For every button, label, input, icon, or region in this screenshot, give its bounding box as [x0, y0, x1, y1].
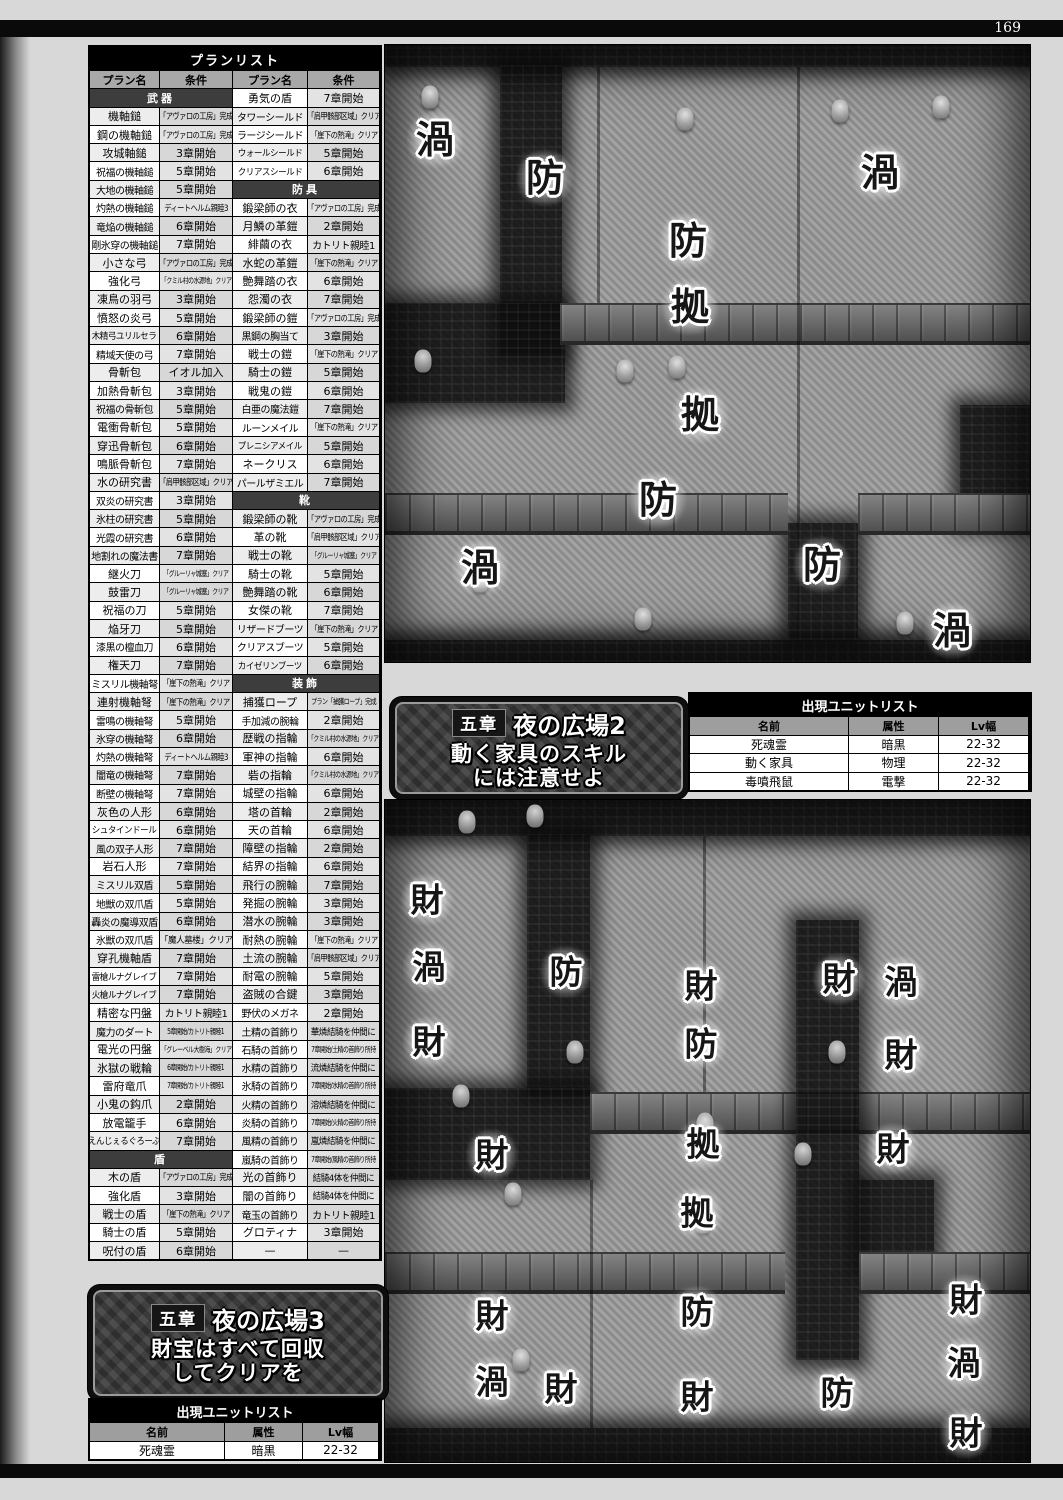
plan-condition-cell: 「崖下の熱滝」クリア — [160, 675, 232, 692]
plan-condition-cell: カトリト親睦1 — [160, 1004, 232, 1021]
unit-cell: 暗黒 — [849, 736, 938, 754]
map-label-treasure: 財 — [685, 970, 718, 1003]
plan-name-cell: 水蛇の革鎧 — [233, 254, 307, 271]
plan-condition-cell: 2章開始 — [160, 1096, 232, 1113]
plan-name-cell: 戦士の靴 — [233, 547, 307, 564]
plan-condition-cell: 6章開始 — [160, 913, 232, 930]
plan-name-cell: 竜玉の首飾り — [233, 1205, 307, 1222]
plan-condition-cell: 7章開始 — [160, 455, 232, 472]
plan-name-cell: 潜水の腕輪 — [233, 913, 307, 930]
plan-condition-cell: 5章開始 — [308, 144, 379, 161]
plan-name-cell: 断壁の機軸弩 — [90, 785, 159, 802]
unit-list-table-left: 出現ユニットリスト 名前属性Lv幅死魂霊暗黒22-32 — [88, 1398, 382, 1461]
plan-name-cell: クリアスシールド — [233, 162, 307, 179]
ghost-sprite — [527, 805, 544, 828]
stage-hint-line: 財宝はすべて回収 — [151, 1337, 325, 1361]
stage-title: 夜の広場2 — [513, 706, 626, 741]
plan-name-cell: 氷獣の双爪盾 — [90, 931, 159, 948]
plan-condition-cell: 結騎4体を仲間に — [308, 1187, 379, 1204]
map-label-defense: 防 — [681, 1296, 714, 1329]
plan-name-cell: 鋼の機軸鎚 — [90, 126, 159, 143]
plan-name-cell: 盗賊の合鍵 — [233, 986, 307, 1003]
chapter-chip: 五章 — [452, 709, 506, 737]
plan-section-cell: 靴 — [233, 492, 379, 509]
plan-name-cell: 氷獄の戦輪 — [90, 1059, 159, 1076]
plan-name-cell: 精密な円盤 — [90, 1004, 159, 1021]
plan-condition-cell: 6章開始 — [308, 455, 379, 472]
plan-name-cell: 騎士の盾 — [90, 1224, 159, 1241]
plan-condition-cell: 「クミル村の水源地」クリア — [308, 766, 379, 783]
plan-section-cell: 装飾 — [233, 675, 379, 692]
plan-condition-cell: 「グルーリャ城塞」クリア — [308, 547, 379, 564]
plan-name-cell: 野伏のメガネ — [233, 1004, 307, 1021]
plan-condition-cell: 嵐燐結騎を仲間に — [308, 1132, 379, 1149]
plan-name-cell: 戦鬼の鎧 — [233, 382, 307, 399]
plan-condition-cell: 「アヴァロの工房」完成 — [160, 1169, 232, 1186]
unit-cell: 22-32 — [939, 773, 1028, 791]
plan-condition-cell: 7章開始/火精の首飾り所持 — [308, 1114, 379, 1131]
plan-condition-cell: 3章開始 — [308, 986, 379, 1003]
plan-condition-cell: 7章開始 — [160, 949, 232, 966]
plan-condition-cell: 6章開始 — [308, 382, 379, 399]
unit-column-header: 名前 — [690, 717, 848, 735]
plan-name-cell: プレニシアメイル — [233, 437, 307, 454]
map-label-treasure: 財 — [950, 1284, 983, 1317]
plan-condition-cell: 6章開始 — [160, 437, 232, 454]
plan-condition-cell: 5章開始/カトリト親睦1 — [160, 1022, 232, 1039]
plan-condition-cell: プラン「捕獲ロープ」完成 — [308, 693, 379, 710]
plan-condition-cell: 5章開始 — [160, 711, 232, 728]
plan-name-cell: 騎士の靴 — [233, 565, 307, 582]
plan-condition-cell: 3章開始 — [308, 913, 379, 930]
statue-sprite — [832, 100, 849, 123]
plan-condition-cell: 6章開始 — [160, 1242, 232, 1259]
plan-name-cell: 祝福の骨斬包 — [90, 400, 159, 417]
plan-condition-cell: 「肩甲骸部区域」クリア — [160, 474, 232, 491]
plan-name-cell: 精域天使の弓 — [90, 345, 159, 362]
plan-condition-cell: 5章開始 — [308, 968, 379, 985]
plan-name-cell: クリアスブーツ — [233, 638, 307, 655]
plan-name-cell: 鍛梁師の鎧 — [233, 309, 307, 326]
plan-name-cell: 耐電の腕輪 — [233, 968, 307, 985]
plan-column-header: 条件 — [308, 71, 379, 88]
plan-condition-cell: 5章開始 — [308, 364, 379, 381]
unit-list-title: 出現ユニットリスト — [690, 694, 1030, 717]
map-label-treasure: 財 — [476, 1139, 509, 1172]
plan-name-cell: 鍛梁師の靴 — [233, 510, 307, 527]
plan-condition-cell: カトリト親睦1 — [308, 236, 379, 253]
plan-name-cell: — — [233, 1242, 307, 1259]
plan-name-cell: 氷騎の首飾り — [233, 1077, 307, 1094]
plan-condition-cell: 7章開始 — [308, 291, 379, 308]
plan-name-cell: 土精の首飾り — [233, 1022, 307, 1039]
plan-condition-cell: 「肩甲骸部区域」クリア — [308, 949, 379, 966]
plan-condition-cell: 「アヴァロの工房」完成 — [308, 199, 379, 216]
ghost-sprite — [897, 612, 914, 635]
plan-condition-cell: 2章開始 — [308, 1004, 379, 1021]
plan-condition-cell: 6章開始 — [308, 657, 379, 674]
plan-condition-cell: 6章開始 — [160, 1114, 232, 1131]
plan-condition-cell: 7章開始 — [160, 657, 232, 674]
statue-sprite — [453, 1085, 470, 1108]
plan-list-grid: プラン名条件プラン名条件武器勇気の盾7章開始機軸鎚「アヴァロの工房」完成タワーシ… — [90, 71, 380, 1259]
page-number: 169 — [994, 20, 1021, 37]
plan-condition-cell: 6章開始 — [308, 785, 379, 802]
plan-name-cell: 怨濁の衣 — [233, 291, 307, 308]
plan-name-cell: 大地の機軸鎚 — [90, 181, 159, 198]
plan-name-cell: ラージシールド — [233, 126, 307, 143]
plan-name-cell: 灼熱の機軸鎚 — [90, 199, 159, 216]
unit-cell: 22-32 — [939, 736, 1028, 754]
plan-condition-cell: 溶燐結騎を仲間に — [308, 1096, 379, 1113]
plan-condition-cell: 3章開始 — [308, 894, 379, 911]
plan-name-cell: 戦士の盾 — [90, 1205, 159, 1222]
plan-condition-cell: 7章開始 — [308, 400, 379, 417]
plan-name-cell: 鳴脈骨斬包 — [90, 455, 159, 472]
plan-list-table: プランリスト プラン名条件プラン名条件武器勇気の盾7章開始機軸鎚「アヴァロの工房… — [88, 45, 382, 1261]
plan-condition-cell: 「崖下の熱滝」クリア — [160, 693, 232, 710]
map-label-treasure: 財 — [411, 884, 444, 917]
plan-name-cell: 木精弓ユリルセラ — [90, 327, 159, 344]
plan-condition-cell: 7章開始 — [160, 547, 232, 564]
plan-condition-cell: 6章開始 — [160, 217, 232, 234]
plan-name-cell: 地割れの魔法書 — [90, 547, 159, 564]
plan-name-cell: 発掘の腕輪 — [233, 894, 307, 911]
plan-name-cell: 歴戦の指輪 — [233, 730, 307, 747]
plan-condition-cell: 7章開始 — [308, 89, 379, 106]
plan-condition-cell: 「崖下の熱滝」クリア — [308, 126, 379, 143]
plan-name-cell: 闇の首飾り — [233, 1187, 307, 1204]
plan-condition-cell: 7章開始/土精の首飾り所持 — [308, 1041, 379, 1058]
plan-condition-cell: 7章開始/カトリト親睦1 — [160, 1077, 232, 1094]
plan-name-cell: 地獣の双爪盾 — [90, 894, 159, 911]
plan-condition-cell: 5章開始 — [308, 565, 379, 582]
unit-column-header: 名前 — [90, 1423, 224, 1441]
plan-name-cell: 祝福の刀 — [90, 602, 159, 619]
unit-column-header: Lv幅 — [303, 1423, 378, 1441]
plan-condition-cell: 「アヴァロの工房」完成 — [308, 510, 379, 527]
map-label-base: 拠 — [681, 396, 719, 434]
plan-name-cell: 革の靴 — [233, 528, 307, 545]
map-label-whirl: 渦 — [476, 1366, 509, 1399]
plan-name-cell: 火精の首飾り — [233, 1096, 307, 1113]
plan-name-cell: 強化弓 — [90, 272, 159, 289]
plan-name-cell: 岩石人形 — [90, 858, 159, 875]
plan-column-header: 条件 — [160, 71, 232, 88]
plan-condition-cell: 7章開始 — [160, 345, 232, 362]
plan-name-cell: ミスリル双盾 — [90, 876, 159, 893]
map-label-treasure: 財 — [413, 1026, 446, 1059]
plan-condition-cell: 2章開始 — [308, 711, 379, 728]
plan-name-cell: 継火刀 — [90, 565, 159, 582]
plan-condition-cell: 「グルーリャ城塞」クリア — [160, 565, 232, 582]
plan-name-cell: 戦士の鎧 — [233, 345, 307, 362]
plan-name-cell: 攻城軸鎚 — [90, 144, 159, 161]
plan-name-cell: 飛行の腕輪 — [233, 876, 307, 893]
plan-condition-cell: 7章開始 — [308, 602, 379, 619]
plan-condition-cell: 7章開始 — [160, 766, 232, 783]
dungeon-map-night-plaza-2: 渦防渦防拠拠防渦防渦 — [385, 45, 1030, 662]
map-label-defense: 防 — [639, 481, 677, 519]
plan-name-cell: 雷府竜爪 — [90, 1077, 159, 1094]
plan-condition-cell: 6章開始 — [308, 272, 379, 289]
unit-cell: 22-32 — [303, 1442, 378, 1460]
plan-condition-cell: 2章開始 — [308, 803, 379, 820]
plan-condition-cell: 「クミル村の水源地」クリア — [160, 272, 232, 289]
plan-condition-cell: 「アヴァロの工房」完成 — [160, 108, 232, 125]
plan-condition-cell: 6章開始 — [308, 583, 379, 600]
plan-condition-cell: — — [308, 1242, 379, 1259]
map-label-base: 拠 — [687, 1128, 720, 1161]
plan-name-cell: 電衝骨斬包 — [90, 419, 159, 436]
plan-condition-cell: 「魔人墓楼」クリア — [160, 931, 232, 948]
dungeon-map-night-plaza-3: 財渦防財財渦財防財拠財財拠財防財渦財財防渦財 — [385, 800, 1030, 1462]
map-label-treasure: 財 — [950, 1417, 983, 1450]
figure-sprite — [505, 1183, 522, 1206]
plan-condition-cell: 7章開始 — [160, 785, 232, 802]
plan-name-cell: 天の首輪 — [233, 821, 307, 838]
plan-name-cell: 小鬼の鈎爪 — [90, 1096, 159, 1113]
map-label-treasure: 財 — [877, 1133, 910, 1166]
plan-condition-cell: 7章開始 — [160, 1132, 232, 1149]
plan-condition-cell: 5章開始 — [160, 400, 232, 417]
map-label-defense: 防 — [669, 222, 707, 260]
plan-condition-cell: 3章開始 — [160, 291, 232, 308]
page-bottom-bar — [0, 1464, 1063, 1478]
map-label-whirl: 渦 — [948, 1347, 981, 1380]
plan-name-cell: 焔牙刀 — [90, 620, 159, 637]
plan-name-cell: グロティナ — [233, 1224, 307, 1241]
plan-name-cell: ウォールシールド — [233, 144, 307, 161]
plan-condition-cell: 5章開始 — [160, 309, 232, 326]
plan-name-cell: 竜焔の機軸鎚 — [90, 217, 159, 234]
map-label-whirl: 渦 — [933, 612, 971, 650]
map-label-treasure: 財 — [823, 963, 856, 996]
plan-name-cell: 艶舞踏の靴 — [233, 583, 307, 600]
plan-condition-cell: 5章開始 — [160, 894, 232, 911]
plan-condition-cell: 7章開始 — [160, 858, 232, 875]
plan-name-cell: ネークリス — [233, 455, 307, 472]
plan-name-cell: 氷穿の機軸弩 — [90, 730, 159, 747]
statue-sprite — [933, 96, 950, 119]
plan-name-cell: 水の研究書 — [90, 474, 159, 491]
ghost-sprite — [422, 86, 439, 109]
plan-condition-cell: 3章開始 — [160, 1187, 232, 1204]
unit-cell: 物理 — [849, 754, 938, 772]
plan-list-title: プランリスト — [90, 47, 380, 71]
map-label-base: 拠 — [681, 1197, 714, 1230]
map-label-treasure: 財 — [476, 1300, 509, 1333]
map-label-defense: 防 — [803, 546, 841, 584]
plan-condition-cell: 5章開始 — [308, 437, 379, 454]
plan-name-cell: 剛氷穿の機軸鎚 — [90, 236, 159, 253]
plan-condition-cell: 「クミル村の水源地」クリア — [308, 730, 379, 747]
plan-condition-cell: 3章開始 — [160, 144, 232, 161]
map-label-whirl: 渦 — [416, 121, 454, 159]
plan-condition-cell: イオル加入 — [160, 364, 232, 381]
statue-sprite — [677, 108, 694, 131]
unit-list-table-right: 出現ユニットリスト 名前属性Lv幅死魂霊暗黒22-32動く家具物理22-32毒噴… — [688, 692, 1032, 792]
plan-name-cell: 女傑の靴 — [233, 602, 307, 619]
plan-name-cell: 手加減の腕輪 — [233, 711, 307, 728]
plan-name-cell: 緋繭の衣 — [233, 236, 307, 253]
plan-name-cell: 加熱骨斬包 — [90, 382, 159, 399]
stage-banner-night-plaza-2: 五章 夜の広場2 動く家具のスキル には注意せよ — [390, 697, 688, 799]
plan-condition-cell: 「グレーベル大樹海」クリア — [160, 1041, 232, 1058]
map-label-treasure: 財 — [545, 1373, 578, 1406]
unit-cell: 毒噴飛鼠 — [690, 773, 848, 791]
figure-sprite — [795, 1143, 812, 1166]
plan-name-cell: 光霞の研究書 — [90, 528, 159, 545]
plan-name-cell: 砦の指輪 — [233, 766, 307, 783]
plan-condition-cell: 6章開始 — [160, 638, 232, 655]
plan-name-cell: えんじぇるぐろーぶ — [90, 1132, 159, 1149]
plan-condition-cell: 「アヴァロの工房」完成 — [308, 309, 379, 326]
plan-name-cell: 漆黒の檀血刀 — [90, 638, 159, 655]
plan-name-cell: 雷槍ルナグレイブ — [90, 968, 159, 985]
plan-condition-cell: 7章開始 — [160, 839, 232, 856]
plan-name-cell: 魔力のダート — [90, 1022, 159, 1039]
plan-name-cell: 轟炎の魔導双盾 — [90, 913, 159, 930]
plan-condition-cell: 7章開始/風精の首飾り所持 — [308, 1151, 379, 1168]
plan-condition-cell: 7章開始 — [160, 236, 232, 253]
plan-column-header: プラン名 — [90, 71, 159, 88]
map-label-treasure: 財 — [885, 1039, 918, 1072]
unit-list-title: 出現ユニットリスト — [90, 1400, 380, 1423]
unit-cell: 動く家具 — [690, 754, 848, 772]
statue-sprite — [829, 1041, 846, 1064]
plan-name-cell: 穿孔機軸盾 — [90, 949, 159, 966]
ghost-sprite — [635, 608, 652, 631]
plan-name-cell: 双炎の研究書 — [90, 492, 159, 509]
plan-condition-cell: 「アヴァロの工房」完成 — [160, 126, 232, 143]
map-label-defense: 防 — [821, 1377, 854, 1410]
plan-name-cell: 障壁の指輪 — [233, 839, 307, 856]
plan-condition-cell: 3章開始 — [308, 327, 379, 344]
map-label-whirl: 渦 — [861, 154, 899, 192]
map-label-whirl: 渦 — [461, 549, 499, 587]
plan-name-cell: 権天刀 — [90, 657, 159, 674]
plan-name-cell: 土流の腕輪 — [233, 949, 307, 966]
stage-banner-night-plaza-3: 五章 夜の広場3 財宝はすべて回収 してクリアを — [88, 1285, 388, 1401]
plan-condition-cell: 6章開始/カトリト親睦1 — [160, 1059, 232, 1076]
plan-condition-cell: 「崖下の熱滝」クリア — [160, 1205, 232, 1222]
plan-condition-cell: 5章開始 — [160, 620, 232, 637]
plan-name-cell: 月鱗の革鎧 — [233, 217, 307, 234]
plan-name-cell: 凍鳥の羽弓 — [90, 291, 159, 308]
unit-column-header: 属性 — [849, 717, 938, 735]
plan-name-cell: パールザミエル — [233, 474, 307, 491]
plan-name-cell: 結界の指輪 — [233, 858, 307, 875]
plan-condition-cell: 5章開始 — [160, 419, 232, 436]
plan-name-cell: 祝福の機軸鎚 — [90, 162, 159, 179]
plan-condition-cell: 6章開始 — [308, 162, 379, 179]
plan-name-cell: 鍛梁師の衣 — [233, 199, 307, 216]
plan-condition-cell: 3章開始 — [308, 1224, 379, 1241]
plan-condition-cell: 7章開始 — [160, 968, 232, 985]
plan-name-cell: 骨斬包 — [90, 364, 159, 381]
unit-column-header: Lv幅 — [939, 717, 1028, 735]
plan-name-cell: 小さな弓 — [90, 254, 159, 271]
plan-name-cell: 連射機軸弩 — [90, 693, 159, 710]
statue-sprite — [567, 1041, 584, 1064]
ghost-sprite — [415, 350, 432, 373]
plan-name-cell: 塔の首輪 — [233, 803, 307, 820]
plan-name-cell: 風の双子人形 — [90, 839, 159, 856]
plan-condition-cell: 6章開始 — [160, 327, 232, 344]
plan-name-cell: 炎騎の首飾り — [233, 1114, 307, 1131]
plan-name-cell: 氷柱の研究書 — [90, 510, 159, 527]
plan-condition-cell: 「崖下の熱滝」クリア — [308, 345, 379, 362]
chapter-chip: 五章 — [151, 1304, 205, 1332]
plan-name-cell: シュタインドール — [90, 821, 159, 838]
plan-name-cell: 黒鋼の胸当て — [233, 327, 307, 344]
plan-name-cell: 放電籠手 — [90, 1114, 159, 1131]
plan-condition-cell: 「アヴァロの工房」完成 — [160, 254, 232, 271]
map-label-defense: 防 — [526, 159, 564, 197]
plan-condition-cell: 「肩甲骸部区域」クリア — [308, 108, 379, 125]
plan-name-cell: 白亜の魔法鎧 — [233, 400, 307, 417]
plan-condition-cell: 5章開始 — [160, 876, 232, 893]
plan-name-cell: 艶舞踏の衣 — [233, 272, 307, 289]
plan-name-cell: 軍神の指輪 — [233, 748, 307, 765]
plan-condition-cell: 2章開始 — [308, 839, 379, 856]
plan-condition-cell: 流燐結騎を仲間に — [308, 1059, 379, 1076]
plan-condition-cell: 7章開始 — [308, 474, 379, 491]
plan-section-cell: 盾 — [90, 1151, 232, 1168]
plan-name-cell: 憤怒の炎弓 — [90, 309, 159, 326]
plan-name-cell: 風精の首飾り — [233, 1132, 307, 1149]
map-label-defense: 防 — [550, 956, 583, 989]
unit-cell: 暗黒 — [225, 1442, 302, 1460]
plan-name-cell: 電光の円盤 — [90, 1041, 159, 1058]
plan-name-cell: カイゼリンブーツ — [233, 657, 307, 674]
map-label-treasure: 財 — [681, 1381, 714, 1414]
plan-column-header: プラン名 — [233, 71, 307, 88]
plan-condition-cell: 「崖下の熱滝」クリア — [308, 620, 379, 637]
unit-cell: 電撃 — [849, 773, 938, 791]
plan-name-cell: 城壁の指輪 — [233, 785, 307, 802]
plan-section-cell: 防具 — [233, 181, 379, 198]
page-top-bar — [0, 20, 1063, 37]
plan-condition-cell: 7章開始 — [160, 986, 232, 1003]
plan-name-cell: 機軸鎚 — [90, 108, 159, 125]
plan-name-cell: 闇竜の機軸弩 — [90, 766, 159, 783]
plan-name-cell: 嵐騎の首飾り — [233, 1151, 307, 1168]
map-label-base: 拠 — [671, 288, 709, 326]
unit-column-header: 属性 — [225, 1423, 302, 1441]
plan-name-cell: 勇気の盾 — [233, 89, 307, 106]
unit-cell: 死魂霊 — [90, 1442, 224, 1460]
plan-condition-cell: 6章開始 — [160, 528, 232, 545]
plan-name-cell: 火槍ルナグレイブ — [90, 986, 159, 1003]
stage-title: 夜の広場3 — [212, 1301, 325, 1336]
plan-name-cell: ルーンメイル — [233, 419, 307, 436]
stage-hint-line: には注意せよ — [473, 766, 605, 790]
ghost-sprite — [617, 360, 634, 383]
plan-name-cell: 水精の首飾り — [233, 1059, 307, 1076]
plan-condition-cell: 5章開始 — [160, 181, 232, 198]
plan-condition-cell: 華燐結騎を仲間に — [308, 1022, 379, 1039]
plan-condition-cell: 6章開始 — [160, 730, 232, 747]
map-label-whirl: 渦 — [885, 966, 918, 999]
plan-condition-cell: 7章開始 — [308, 876, 379, 893]
plan-section-cell: 武器 — [90, 89, 232, 106]
plan-name-cell: 木の盾 — [90, 1169, 159, 1186]
plan-name-cell: 強化盾 — [90, 1187, 159, 1204]
plan-condition-cell: ディートヘルム親睦3 — [160, 199, 232, 216]
book-gutter-shadow — [0, 37, 30, 1464]
